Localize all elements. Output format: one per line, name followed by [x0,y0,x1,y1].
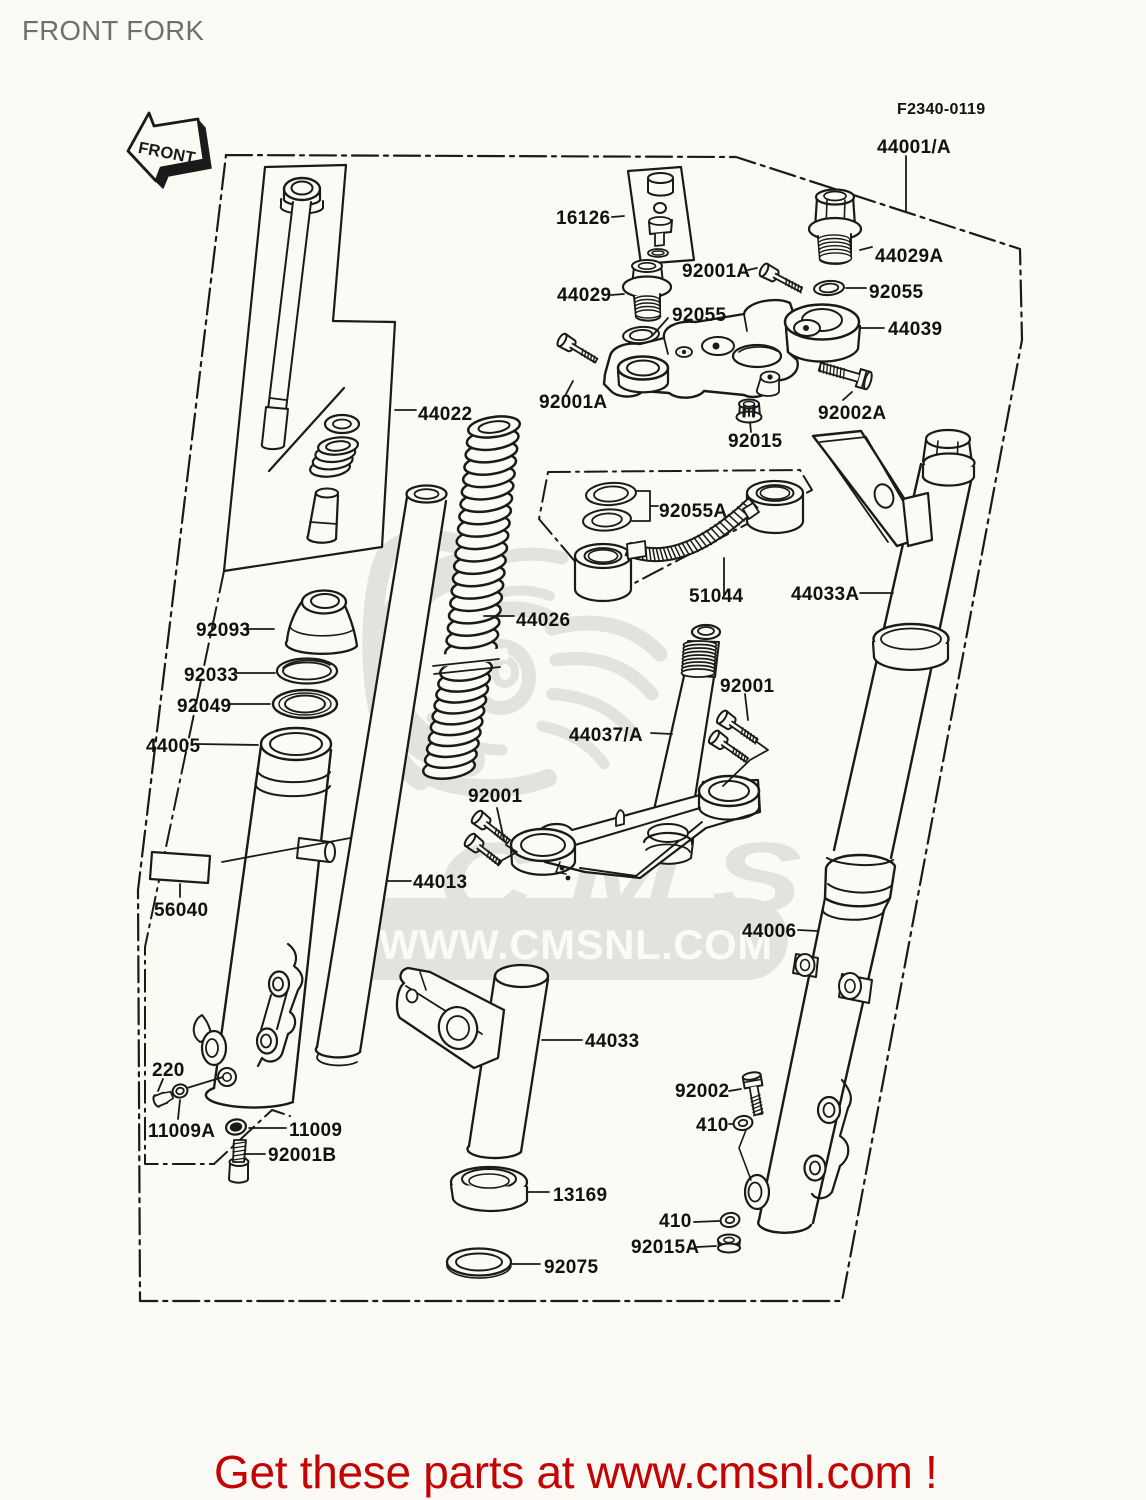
svg-text:92015: 92015 [728,431,782,452]
svg-text:16126: 16126 [556,208,610,229]
svg-text:44006: 44006 [742,921,796,942]
svg-text:92055: 92055 [672,305,726,326]
svg-text:92001: 92001 [468,786,522,807]
svg-text:44001/A: 44001/A [877,137,951,158]
svg-text:92055A: 92055A [659,501,727,522]
svg-text:11009: 11009 [289,1120,342,1141]
svg-text:11009A: 11009A [148,1121,215,1142]
svg-text:92033: 92033 [184,665,238,686]
svg-text:92001A: 92001A [682,261,750,282]
svg-text:92001: 92001 [720,676,774,697]
svg-text:F2340-0119: F2340-0119 [897,101,985,118]
svg-text:13169: 13169 [553,1185,607,1206]
svg-text:410: 410 [659,1211,692,1232]
svg-text:Get these parts at www.cmsnl.c: Get these parts at www.cmsnl.com ! [214,1446,938,1498]
svg-text:92002A: 92002A [818,403,886,424]
svg-text:44039: 44039 [888,319,942,340]
svg-text:92049: 92049 [177,696,231,717]
svg-text:92055: 92055 [869,282,923,303]
svg-text:44029A: 44029A [875,246,943,267]
svg-text:410: 410 [696,1115,729,1136]
svg-text:44013: 44013 [413,872,467,893]
svg-text:44033: 44033 [585,1031,639,1052]
svg-text:92002: 92002 [675,1081,729,1102]
svg-text:51044: 51044 [689,586,743,607]
svg-text:44005: 44005 [146,736,200,757]
svg-text:92001A: 92001A [539,392,607,413]
svg-text:44022: 44022 [418,404,472,425]
svg-text:220: 220 [152,1060,185,1081]
svg-text:WWW.CMSNL.COM: WWW.CMSNL.COM [379,921,773,968]
svg-text:92015A: 92015A [631,1237,699,1258]
svg-text:92001B: 92001B [268,1145,336,1166]
svg-text:FRONT FORK: FRONT FORK [22,15,204,46]
svg-text:56040: 56040 [154,900,208,921]
svg-text:92093: 92093 [196,620,250,641]
svg-text:44033A: 44033A [791,584,859,605]
svg-text:44029: 44029 [557,285,611,306]
svg-text:92075: 92075 [544,1257,598,1278]
svg-text:44037/A: 44037/A [569,725,643,746]
svg-text:44026: 44026 [516,610,570,631]
